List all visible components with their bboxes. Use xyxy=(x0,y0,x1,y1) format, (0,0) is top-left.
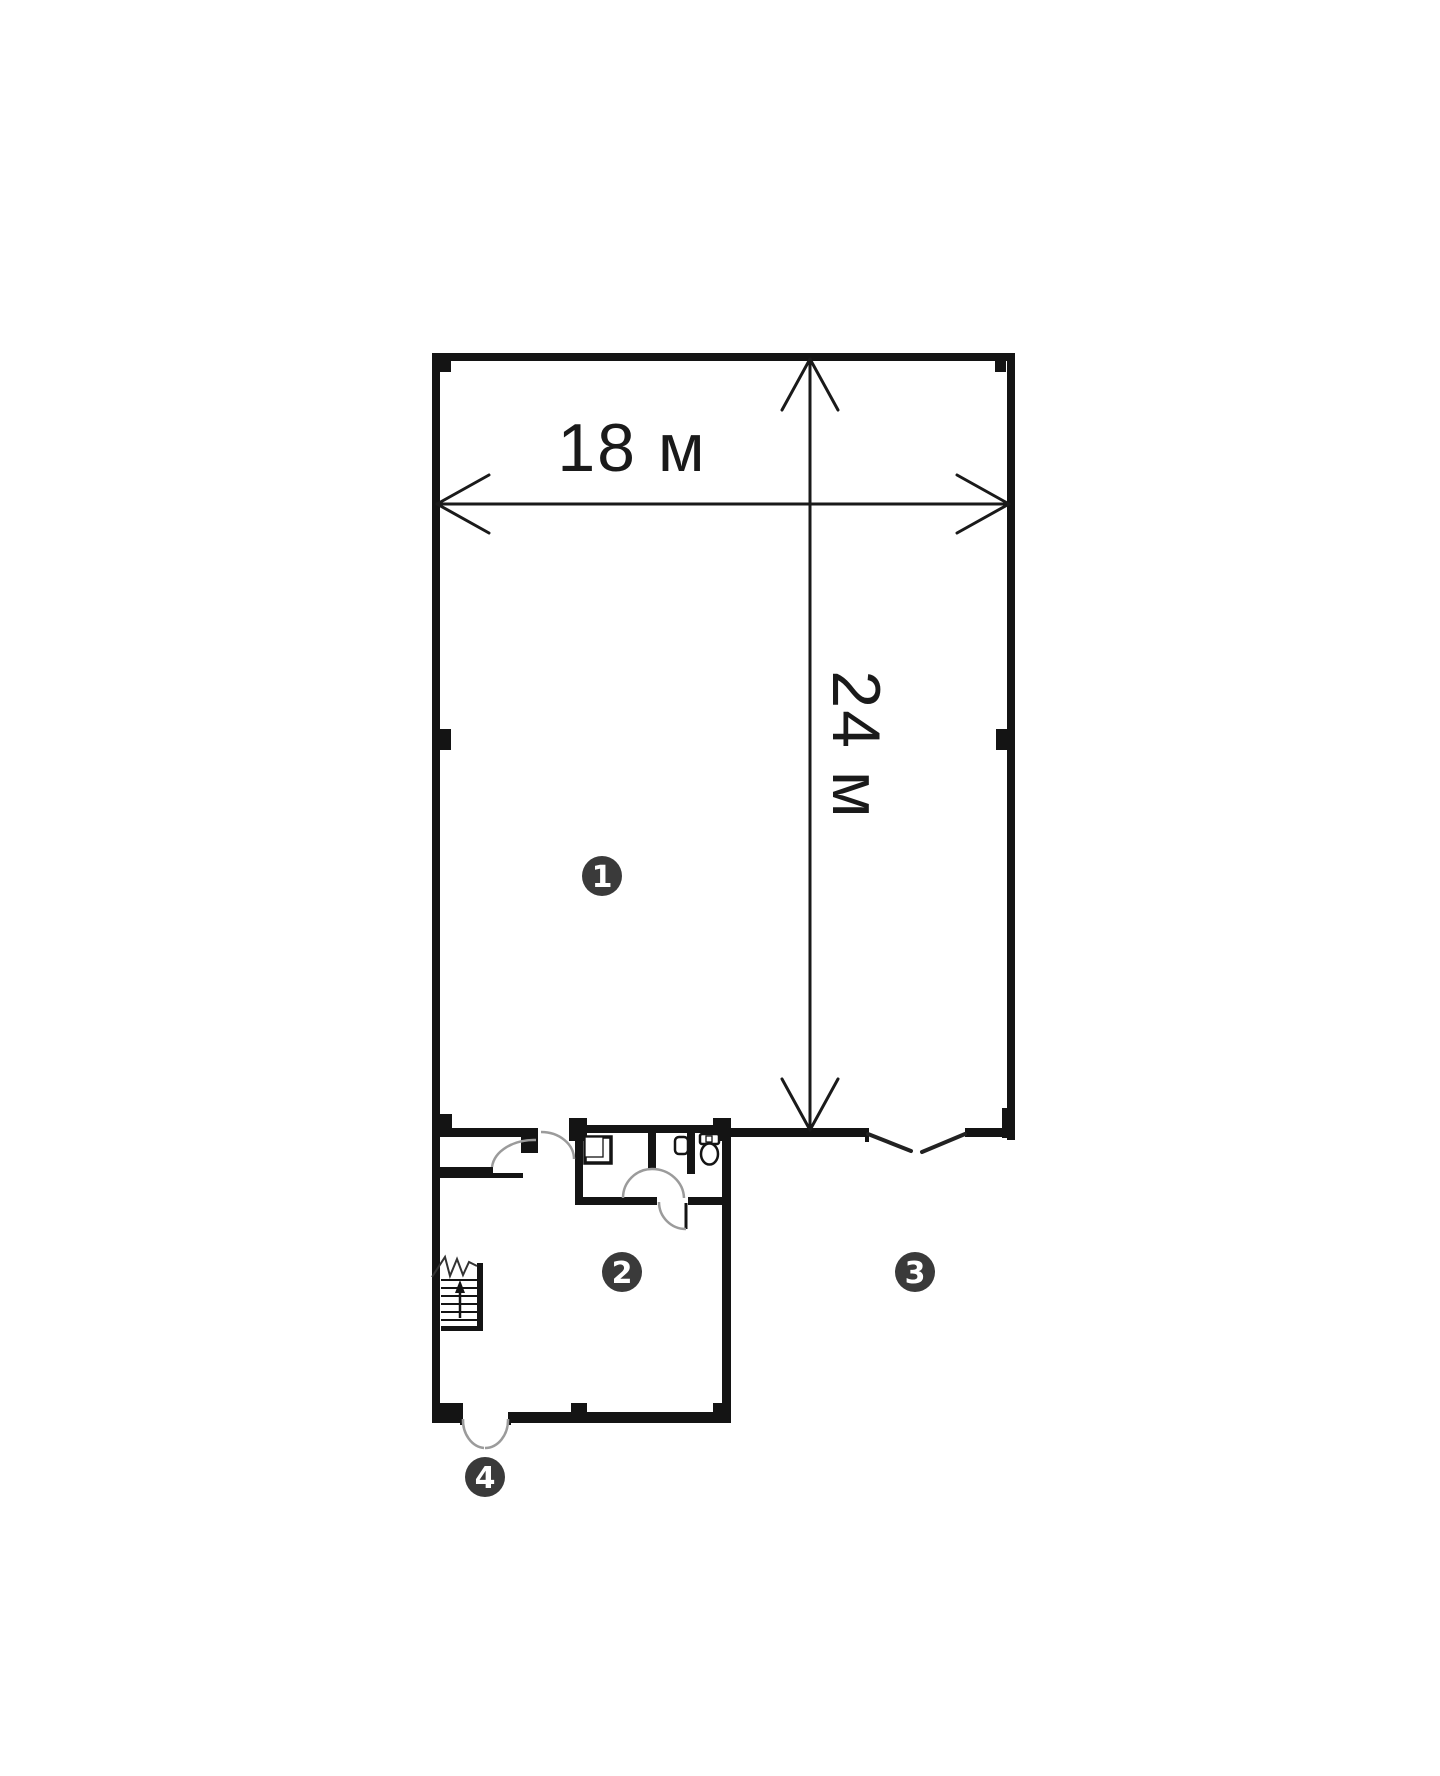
height-dimension-label: 24 м xyxy=(818,670,894,819)
floor-plan-page: 18 м 24 м 1 2 3 xyxy=(0,0,1440,1776)
corner-block-top-right xyxy=(995,361,1006,372)
urinal-body xyxy=(675,1137,688,1154)
toilet-bowl xyxy=(701,1144,718,1165)
dimension-annotations: 18 м 24 м xyxy=(437,359,1009,1130)
stairs-right-edge xyxy=(477,1263,483,1330)
area-marker-1: 1 xyxy=(582,856,622,896)
stall-left-door-arc xyxy=(623,1169,652,1198)
bottom-corner-block-left xyxy=(440,1403,463,1412)
bathroom-partition-a xyxy=(648,1133,656,1170)
marker-number: 3 xyxy=(905,1256,926,1291)
floor-plan-canvas: 18 м 24 м 1 2 3 xyxy=(0,0,1440,1776)
marker-number: 4 xyxy=(475,1461,496,1496)
bathroom-left-wall xyxy=(575,1125,583,1205)
bathroom-bottom-wall-b xyxy=(688,1197,731,1205)
bottom-wall-seg-a xyxy=(432,1412,463,1423)
area-marker-2: 2 xyxy=(602,1252,642,1292)
area-marker-4: 4 xyxy=(465,1457,505,1497)
double-door-leaf-icon xyxy=(868,1134,965,1152)
bathroom-bottom-wall-a xyxy=(575,1197,657,1205)
wc-door-arc xyxy=(659,1202,686,1229)
bottom-wall-seg-b xyxy=(508,1412,731,1423)
vestibule-wall-a xyxy=(432,1167,493,1178)
corner-pillar-bottom-left xyxy=(432,1114,452,1137)
marker-number: 1 xyxy=(592,860,613,895)
area-marker-3: 3 xyxy=(895,1252,935,1292)
bottom-wall-pillar-mid xyxy=(571,1403,587,1412)
wall-bottom-seg-b xyxy=(731,1128,868,1137)
width-dimension-arrow: 18 м xyxy=(437,410,1009,533)
doors xyxy=(463,1132,965,1448)
double-door-arc-icon xyxy=(463,1419,508,1448)
area-markers: 1 2 3 4 xyxy=(465,856,935,1497)
stall-right-door-arc xyxy=(652,1169,684,1198)
wall-left xyxy=(432,353,440,1423)
stairs-arrow-head xyxy=(455,1280,465,1293)
toilet-icon xyxy=(700,1134,719,1165)
bathroom-top-wall xyxy=(575,1125,731,1133)
marker-number: 2 xyxy=(612,1256,633,1291)
toilet-button xyxy=(706,1136,712,1142)
corner-step-bottom-right xyxy=(1002,1108,1015,1138)
pilaster-left xyxy=(440,729,451,750)
bottom-corner-block-right xyxy=(713,1403,722,1412)
sink-inner-line xyxy=(585,1137,603,1157)
sink-icon xyxy=(585,1137,611,1163)
urinal-icon xyxy=(675,1137,688,1154)
entrance-door-arc-left xyxy=(463,1419,484,1448)
vestibule-wall-b xyxy=(493,1173,523,1178)
side-opening-leaf-left xyxy=(868,1134,911,1151)
wall-right xyxy=(1007,353,1015,1140)
entrance-door-arc-right xyxy=(485,1419,508,1448)
corner-block-top-left xyxy=(440,361,451,372)
height-dimension-arrow: 24 м xyxy=(782,359,894,1130)
room2-right-wall xyxy=(722,1125,731,1423)
bathroom xyxy=(569,1118,731,1205)
pilaster-right xyxy=(996,729,1007,750)
stairs-bottom-edge xyxy=(441,1326,483,1331)
width-dimension-label: 18 м xyxy=(557,410,706,486)
side-opening-leaf-right xyxy=(922,1134,965,1152)
wall-top xyxy=(432,353,1015,361)
